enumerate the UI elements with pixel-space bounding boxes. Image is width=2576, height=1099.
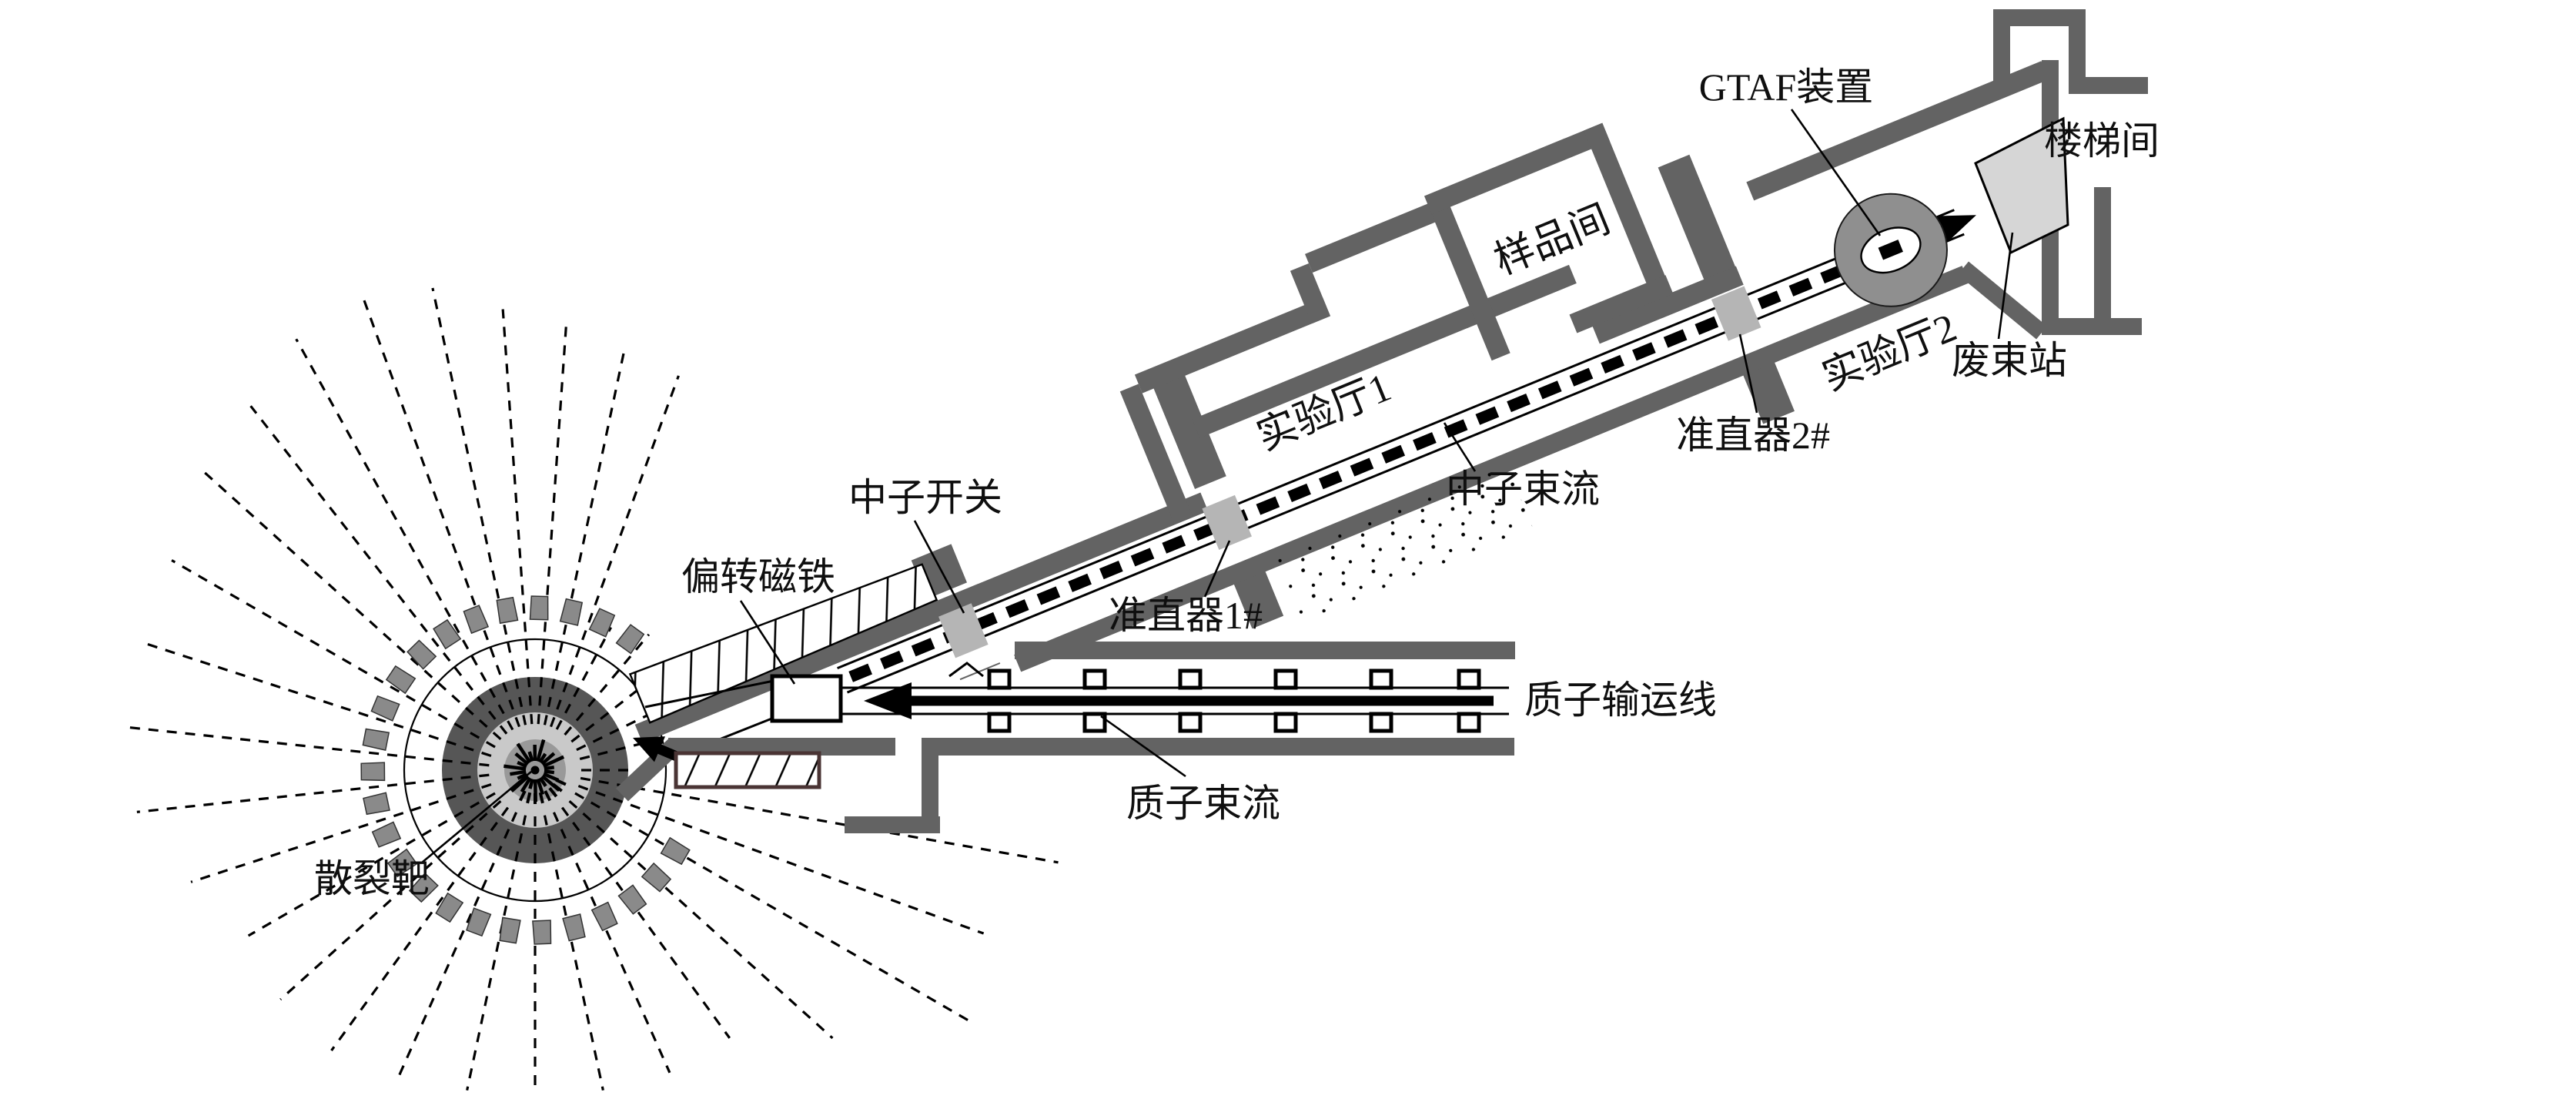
- leader-waste-beam-station: [1999, 233, 2012, 339]
- neutron-beam-dashed-line: [851, 237, 1922, 677]
- proton-wall-bottom-right: [922, 738, 1514, 756]
- doorway-cap-wall: [845, 816, 940, 833]
- stair-wall-chimney-top: [1993, 9, 2080, 26]
- label-proton-beam: 质子束流: [1126, 782, 1280, 825]
- label-bending-magnet: 偏转磁铁: [681, 555, 835, 598]
- label-collimator-1: 准直器1#: [1109, 594, 1263, 637]
- hall1-north-wall-2: [1305, 202, 1440, 273]
- label-spallation-target: 散裂靶: [314, 857, 430, 900]
- label-sample-room: 样品间: [1488, 197, 1616, 283]
- proton-wall-top: [1015, 642, 1515, 659]
- label-collimator-2: 准直器2#: [1676, 414, 1830, 457]
- bending-magnet-box: [772, 676, 841, 721]
- doorway-side-wall: [922, 756, 938, 817]
- label-neutron-beam: 中子束流: [1446, 467, 1600, 511]
- facility-diagram: 实验厅1 实验厅2 样品间: [0, 0, 2576, 1099]
- stair-wall-inner-right: [2094, 187, 2111, 320]
- label-waste-beam-station: 废束站: [1952, 339, 2067, 382]
- sample-room-top-wall: [1424, 123, 1610, 215]
- label-proton-transport-line: 质子输运线: [1524, 678, 1717, 722]
- stair-wall-top-right: [2069, 77, 2148, 94]
- label-neutron-shutter: 中子开关: [848, 476, 1002, 519]
- diagram-canvas: 实验厅1 实验厅2 样品间: [0, 0, 2576, 1099]
- label-gtaf-device: GTAF装置: [1699, 65, 1874, 109]
- label-stairwell: 楼梯间: [2044, 119, 2159, 163]
- stair-wall-chimney-right: [2069, 9, 2086, 81]
- stair-wall-bottom: [2042, 318, 2142, 335]
- hall2-end-wall: [1963, 268, 2042, 333]
- hatched-block-lower: [676, 753, 819, 787]
- beam-tube-lower-line: [848, 234, 1965, 692]
